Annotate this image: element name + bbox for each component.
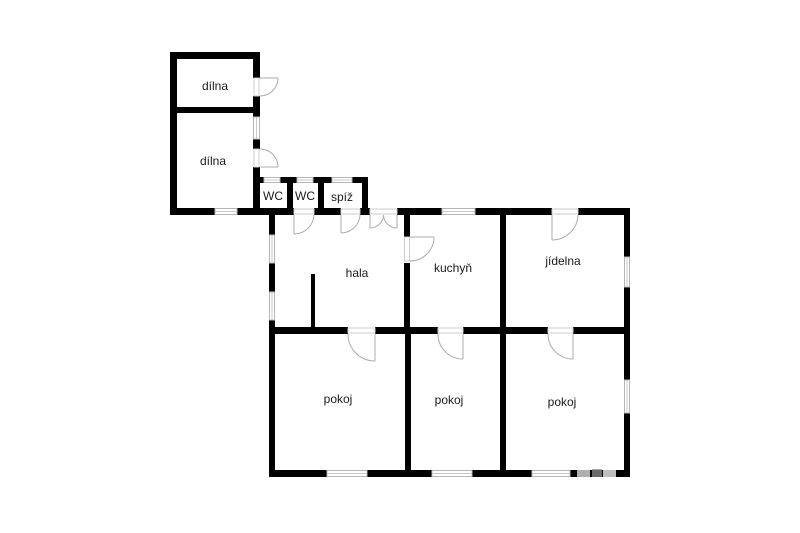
- wall-hala-kuchyn-a: [404, 215, 410, 237]
- window-pokoj-right-side: [625, 380, 630, 413]
- wall-spiz-right: [362, 183, 368, 208]
- wall-middle-b: [375, 327, 438, 334]
- window-hala-left-lower: [270, 292, 275, 320]
- wall-middle-d: [573, 327, 630, 334]
- wall-wcrow-top-c: [313, 177, 332, 183]
- door-pokoj-middle: [438, 328, 463, 359]
- window-jidelna-right: [625, 257, 630, 287]
- room-label-dilna-upper: dílna: [202, 79, 228, 93]
- wall-house-right-c: [624, 413, 630, 477]
- room-label-pokoj-middle: pokoj: [435, 393, 464, 407]
- door-dilna-upper: [254, 78, 278, 96]
- wall-dilna-right-a: [253, 52, 260, 78]
- wall-dilna-right-d: [253, 167, 260, 215]
- window-kuchyn-top: [442, 209, 475, 215]
- door-entry-double: [370, 209, 397, 228]
- window-wc-right-top: [297, 178, 313, 183]
- room-label-hala: hala: [346, 266, 369, 280]
- door-dilna-lower: [254, 149, 278, 167]
- wall-middle-c: [463, 327, 548, 334]
- wall-dilna-left: [170, 52, 177, 215]
- room-label-pokoj-right: pokoj: [548, 395, 577, 409]
- room-label-jidelna: jídelna: [544, 254, 581, 268]
- door-pokoj-left: [348, 328, 375, 361]
- wall-wcrow-top-a: [253, 177, 264, 183]
- wall-house-left-b: [269, 263, 275, 292]
- wall-wcrow-top-d: [352, 177, 368, 183]
- window-pokoj-left-bottom: [327, 471, 367, 477]
- wall-top-strip-a: [170, 208, 215, 215]
- wall-top-strip-e: [397, 208, 442, 215]
- wall-dilna-top: [170, 52, 260, 59]
- window-wc-left-top: [264, 178, 280, 183]
- wall-dilna-divider: [177, 107, 253, 113]
- wall-top-strip-d: [360, 208, 370, 215]
- wall-middle-a: [269, 327, 348, 334]
- floor-plan-canvas: dílna dílna WC WC spíž hala kuchyň jídel…: [0, 0, 800, 533]
- floor-plan-page: dílna dílna WC WC spíž hala kuchyň jídel…: [0, 0, 800, 533]
- window-pokoj-middle-bottom: [432, 471, 472, 477]
- door-hala-to-kuchyn: [405, 237, 435, 261]
- wall-dilna-right-b: [253, 96, 260, 117]
- wall-hala-kuchyn-b: [404, 263, 410, 327]
- wall-house-bottom-a: [269, 470, 327, 477]
- watermark: [577, 469, 616, 477]
- window-spiz-top: [332, 178, 352, 183]
- room-label-pokoj-left: pokoj: [324, 392, 353, 406]
- wall-pokoj2-pokoj3: [500, 334, 506, 470]
- window-pokoj-right-bottom: [532, 471, 570, 477]
- wall-top-strip-b: [237, 208, 294, 215]
- wall-house-right-a: [624, 208, 630, 257]
- doors: [254, 78, 578, 361]
- room-label-dilna-lower: dílna: [200, 154, 226, 168]
- wall-pokoj1-pokoj2: [405, 334, 411, 470]
- door-pokoj-right: [548, 328, 573, 359]
- door-spiz-to-hala: [341, 209, 360, 233]
- wall-hala-stub: [311, 274, 315, 327]
- wall-house-bottom-c: [472, 470, 532, 477]
- wall-dilna-right-c: [253, 139, 260, 149]
- wall-wcrow-top-b: [280, 177, 297, 183]
- wall-top-strip-c: [314, 208, 341, 215]
- wall-house-left-c: [269, 320, 275, 477]
- room-label-spiz: spíž: [331, 190, 353, 204]
- wall-house-bottom-b: [367, 470, 432, 477]
- door-jidelna: [552, 209, 578, 240]
- windows: [215, 117, 630, 477]
- wall-wc2-spiz-divider: [318, 183, 324, 208]
- room-label-wc-left: WC: [263, 189, 283, 203]
- wall-wc1-wc2-divider: [287, 183, 293, 208]
- wall-kuchyn-jidelna: [500, 215, 506, 327]
- window-dilna-right: [254, 117, 260, 139]
- window-hala-left-upper: [270, 235, 275, 263]
- door-wc-right-to-hala: [294, 209, 314, 234]
- wall-house-left-a: [269, 215, 275, 235]
- room-label-wc-right: WC: [295, 189, 315, 203]
- room-label-kuchyn: kuchyň: [434, 261, 472, 275]
- wall-top-strip-g: [578, 208, 630, 215]
- window-dilna-bottom: [215, 209, 237, 215]
- wall-top-strip-f: [475, 208, 552, 215]
